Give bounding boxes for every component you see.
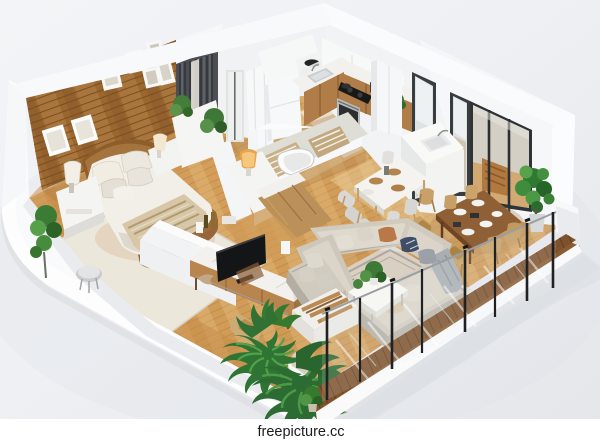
svg-text:freepicture.cc: freepicture.cc: [257, 424, 344, 440]
